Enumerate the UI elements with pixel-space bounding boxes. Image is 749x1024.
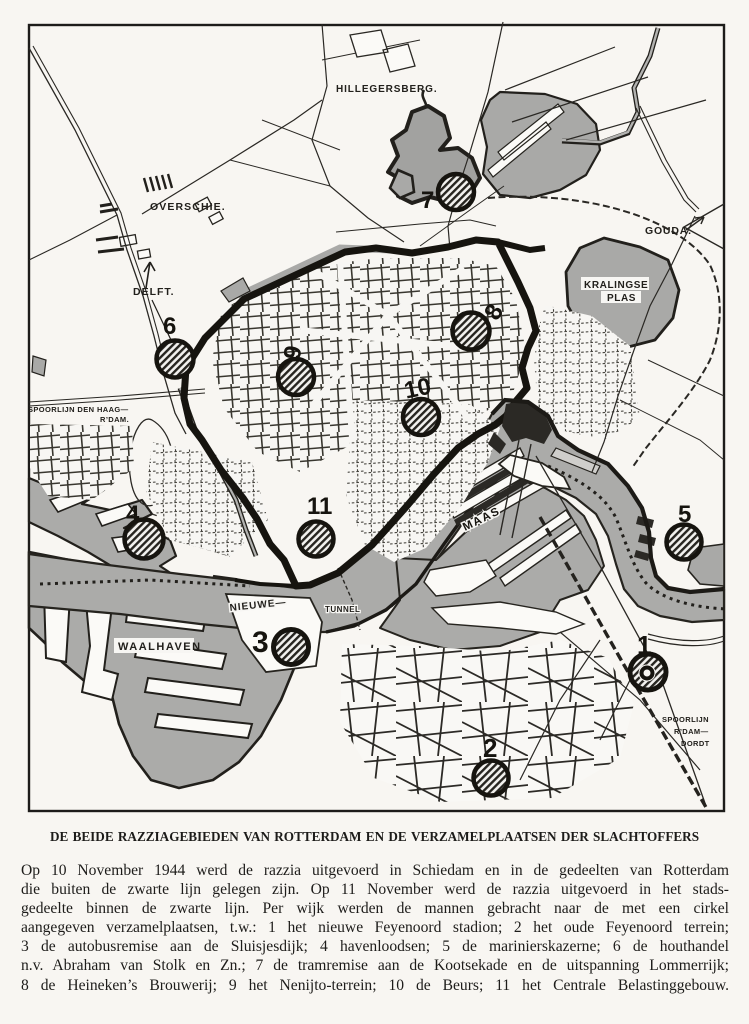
svg-text:WAALHAVEN: WAALHAVEN <box>118 641 202 653</box>
svg-text:6: 6 <box>163 313 176 340</box>
svg-text:OVERSCHIE.: OVERSCHIE. <box>150 201 226 213</box>
svg-text:DORDT: DORDT <box>681 739 710 748</box>
svg-text:7: 7 <box>421 187 434 214</box>
svg-text:3: 3 <box>252 626 269 659</box>
svg-text:PLAS: PLAS <box>607 293 636 304</box>
svg-text:HILLEGERSBERG.: HILLEGERSBERG. <box>336 84 438 95</box>
svg-text:11: 11 <box>307 493 332 520</box>
svg-text:SPOORLIJN: SPOORLIJN <box>662 715 709 724</box>
svg-text:R’DAM—: R’DAM— <box>674 727 709 736</box>
svg-text:2: 2 <box>483 733 497 763</box>
svg-text:4: 4 <box>126 501 140 528</box>
svg-text:1: 1 <box>637 630 651 660</box>
svg-text:TUNNEL: TUNNEL <box>325 605 360 614</box>
svg-text:10: 10 <box>402 373 434 405</box>
svg-text:5: 5 <box>678 501 691 528</box>
svg-text:SPOORLIJN DEN HAAG—: SPOORLIJN DEN HAAG— <box>28 405 129 414</box>
svg-text:KRALINGSE: KRALINGSE <box>584 280 648 291</box>
svg-text:DELFT.: DELFT. <box>133 286 175 298</box>
svg-text:GOUDA.: GOUDA. <box>645 225 692 237</box>
svg-text:R’DAM.: R’DAM. <box>100 415 129 424</box>
